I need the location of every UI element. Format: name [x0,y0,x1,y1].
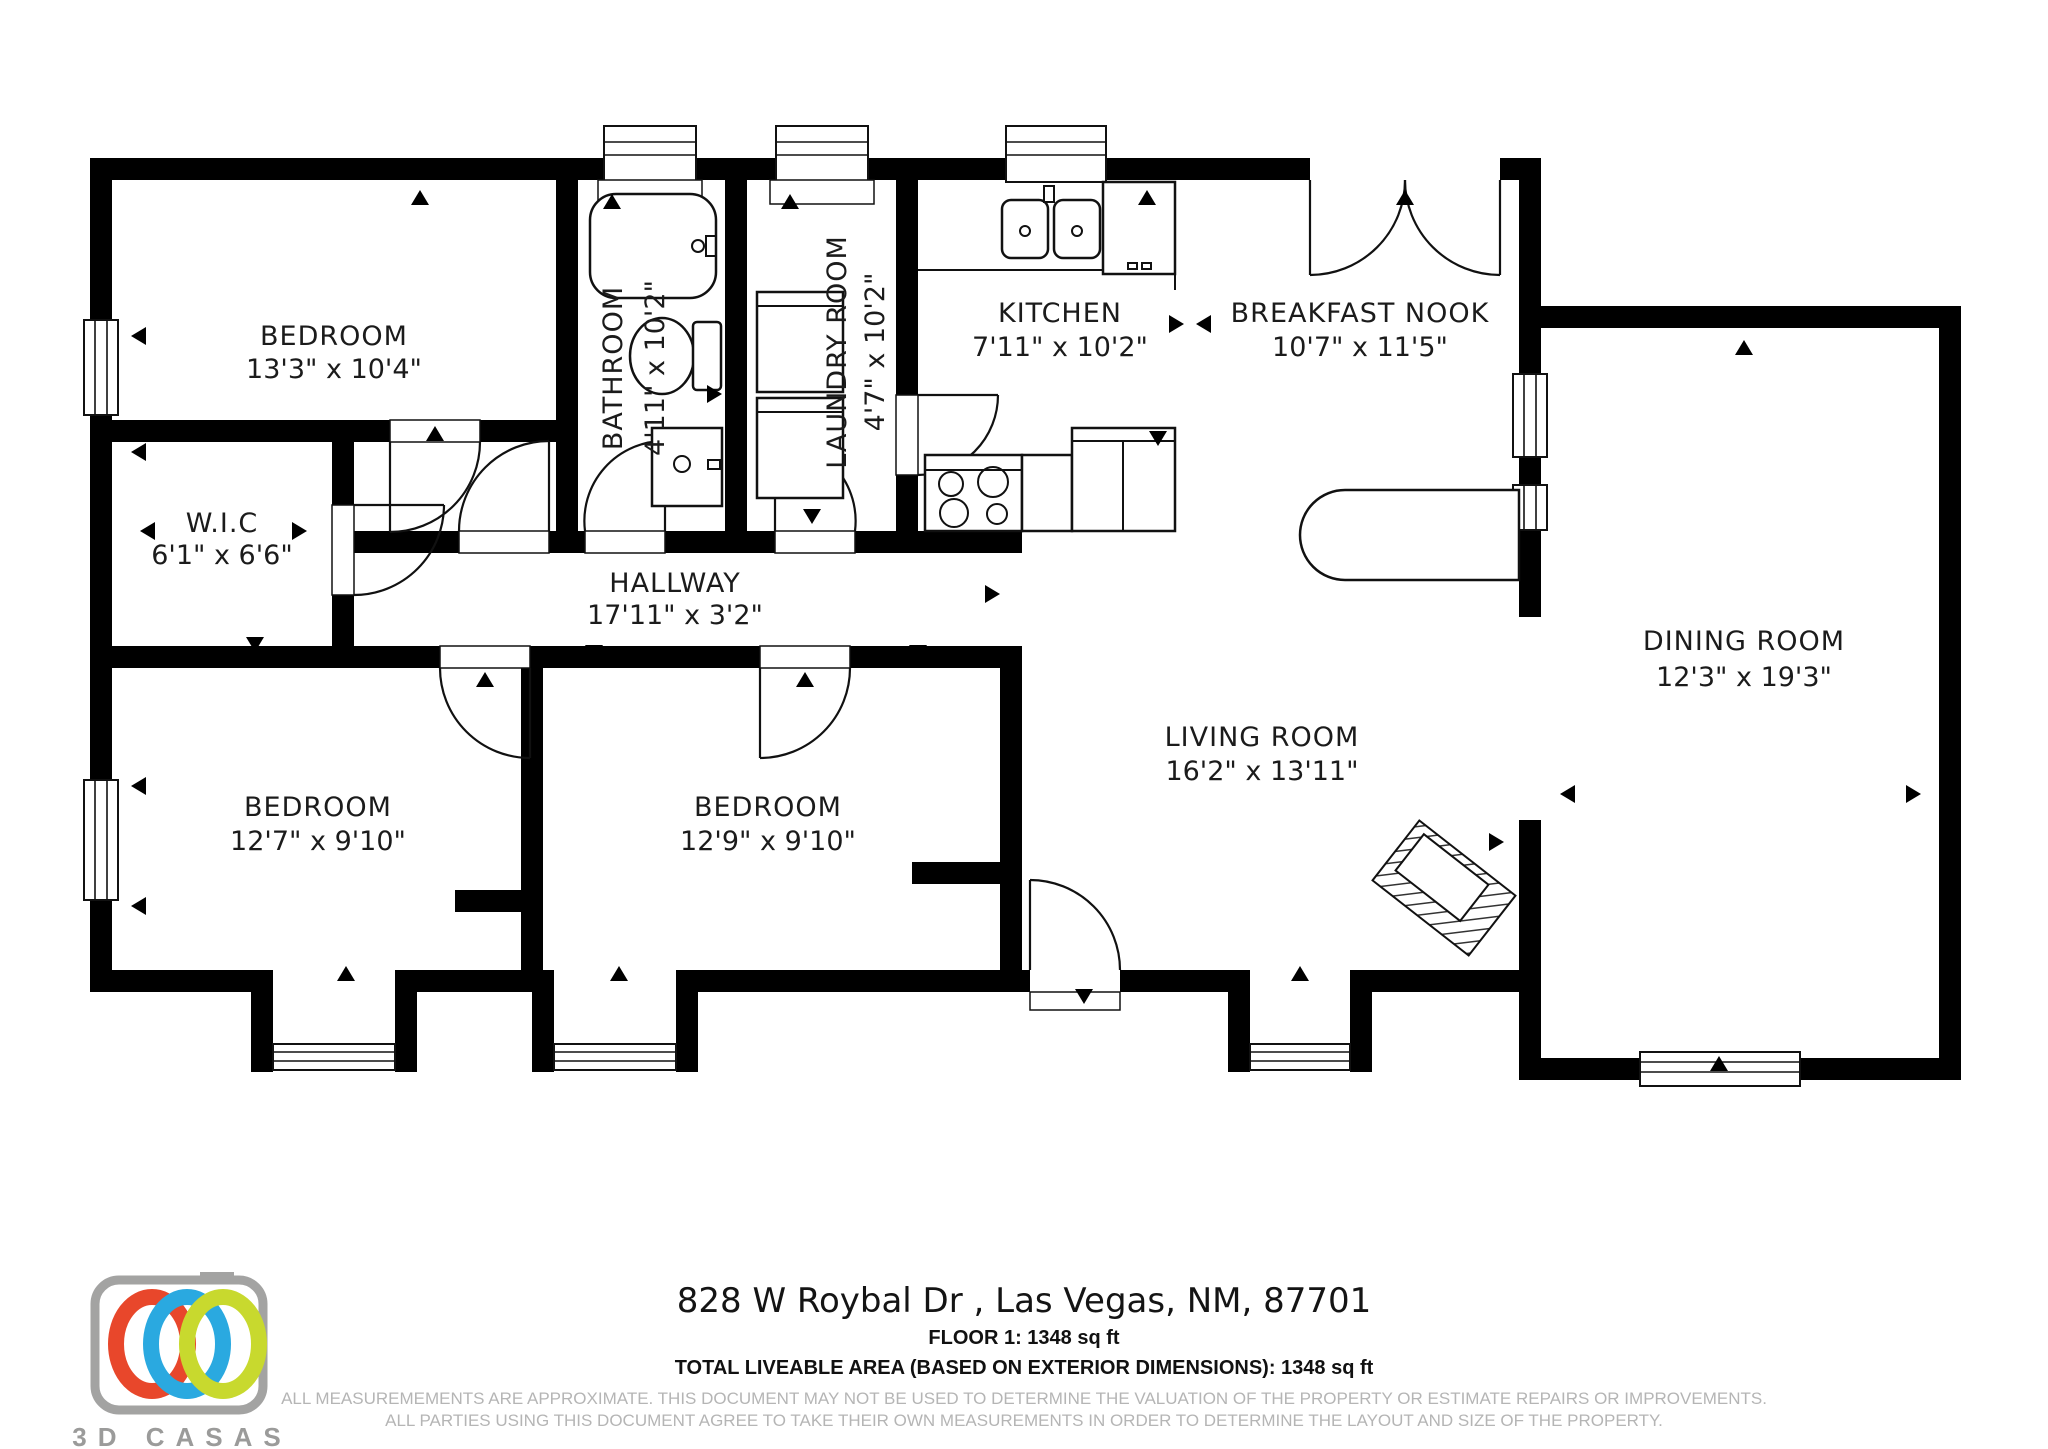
direction-arrow [1169,315,1184,333]
room-dims-kitchen: 7'11" x 10'2" [972,332,1148,363]
room-dims-living: 16'2" x 13'11" [1165,756,1358,787]
room-label-bedroom3: BEDROOM [694,792,842,823]
counter [1022,455,1072,531]
stove [925,455,1022,531]
direction-arrow [1396,190,1414,205]
floorplan-page: BEDROOM 13'3" x 10'4" BATHROOM 4'11" x 1… [0,0,2048,1449]
direction-arrow [1291,966,1309,981]
direction-arrow [411,190,429,205]
disclaimer-line-1: ALL MEASUREMEMENTS ARE APPROXIMATE. THIS… [281,1389,1767,1408]
room-label-kitchen: KITCHEN [998,298,1122,329]
direction-arrow [796,672,814,687]
nook-counter [1300,490,1519,580]
direction-arrow [985,585,1000,603]
direction-arrow [131,327,146,345]
room-dims-wic: 6'1" x 6'6" [151,540,293,571]
direction-arrow [140,522,155,540]
logo-brand-text: 3D CASAS [72,1422,291,1449]
room-dims-bedroom1: 13'3" x 10'4" [246,354,422,385]
floorplan-svg: BEDROOM 13'3" x 10'4" BATHROOM 4'11" x 1… [0,0,2048,1449]
room-dims-bedroom2: 12'7" x 9'10" [230,826,406,857]
direction-arrow [1489,833,1504,851]
room-label-wic: W.I.C [186,508,259,539]
room-dims-bedroom3: 12'9" x 9'10" [680,826,856,857]
direction-arrow [131,443,146,461]
room-label-bedroom1: BEDROOM [260,321,408,352]
direction-arrow [131,777,146,795]
direction-arrow [131,897,146,915]
room-dims-nook: 10'7" x 11'5" [1272,332,1448,363]
total-area-line: TOTAL LIVEABLE AREA (BASED ON EXTERIOR D… [675,1357,1374,1379]
direction-arrow [476,672,494,687]
direction-arrow [610,966,628,981]
logo: 3D CASAS [72,1272,291,1449]
room-label-dining: DINING ROOM [1643,626,1845,657]
direction-arrow [803,509,821,524]
direction-arrow [292,522,307,540]
room-label-bedroom2: BEDROOM [244,792,392,823]
footer: 828 W Roybal Dr , Las Vegas, NM, 87701 F… [281,1281,1767,1430]
room-label-laundry: LAUNDRY ROOM [822,235,853,469]
floor-area-line: FLOOR 1: 1348 sq ft [928,1327,1119,1349]
room-dims-bathroom: 4'11" x 10'2" [640,280,671,456]
room-dims-laundry: 4'7" x 10'2" [860,273,891,432]
room-label-nook: BREAKFAST NOOK [1231,298,1490,329]
room-dims-dining: 12'3" x 19'3" [1656,662,1832,693]
direction-arrow [337,966,355,981]
direction-arrow [1196,315,1211,333]
direction-arrow [1560,785,1575,803]
room-dims-hallway: 17'11" x 3'2" [587,600,763,631]
fridge [1072,428,1175,531]
logo-notch [200,1272,234,1284]
direction-arrow [1735,340,1753,355]
disclaimer-line-2: ALL PARTIES USING THIS DOCUMENT AGREE TO… [385,1411,1663,1430]
direction-arrow [1906,785,1921,803]
room-label-living: LIVING ROOM [1165,722,1360,753]
room-label-bathroom: BATHROOM [598,286,629,450]
address-title: 828 W Roybal Dr , Las Vegas, NM, 87701 [677,1281,1372,1321]
kitchen-counter [918,182,1175,290]
room-label-hallway: HALLWAY [609,568,740,599]
walls-layer [90,158,1961,1080]
